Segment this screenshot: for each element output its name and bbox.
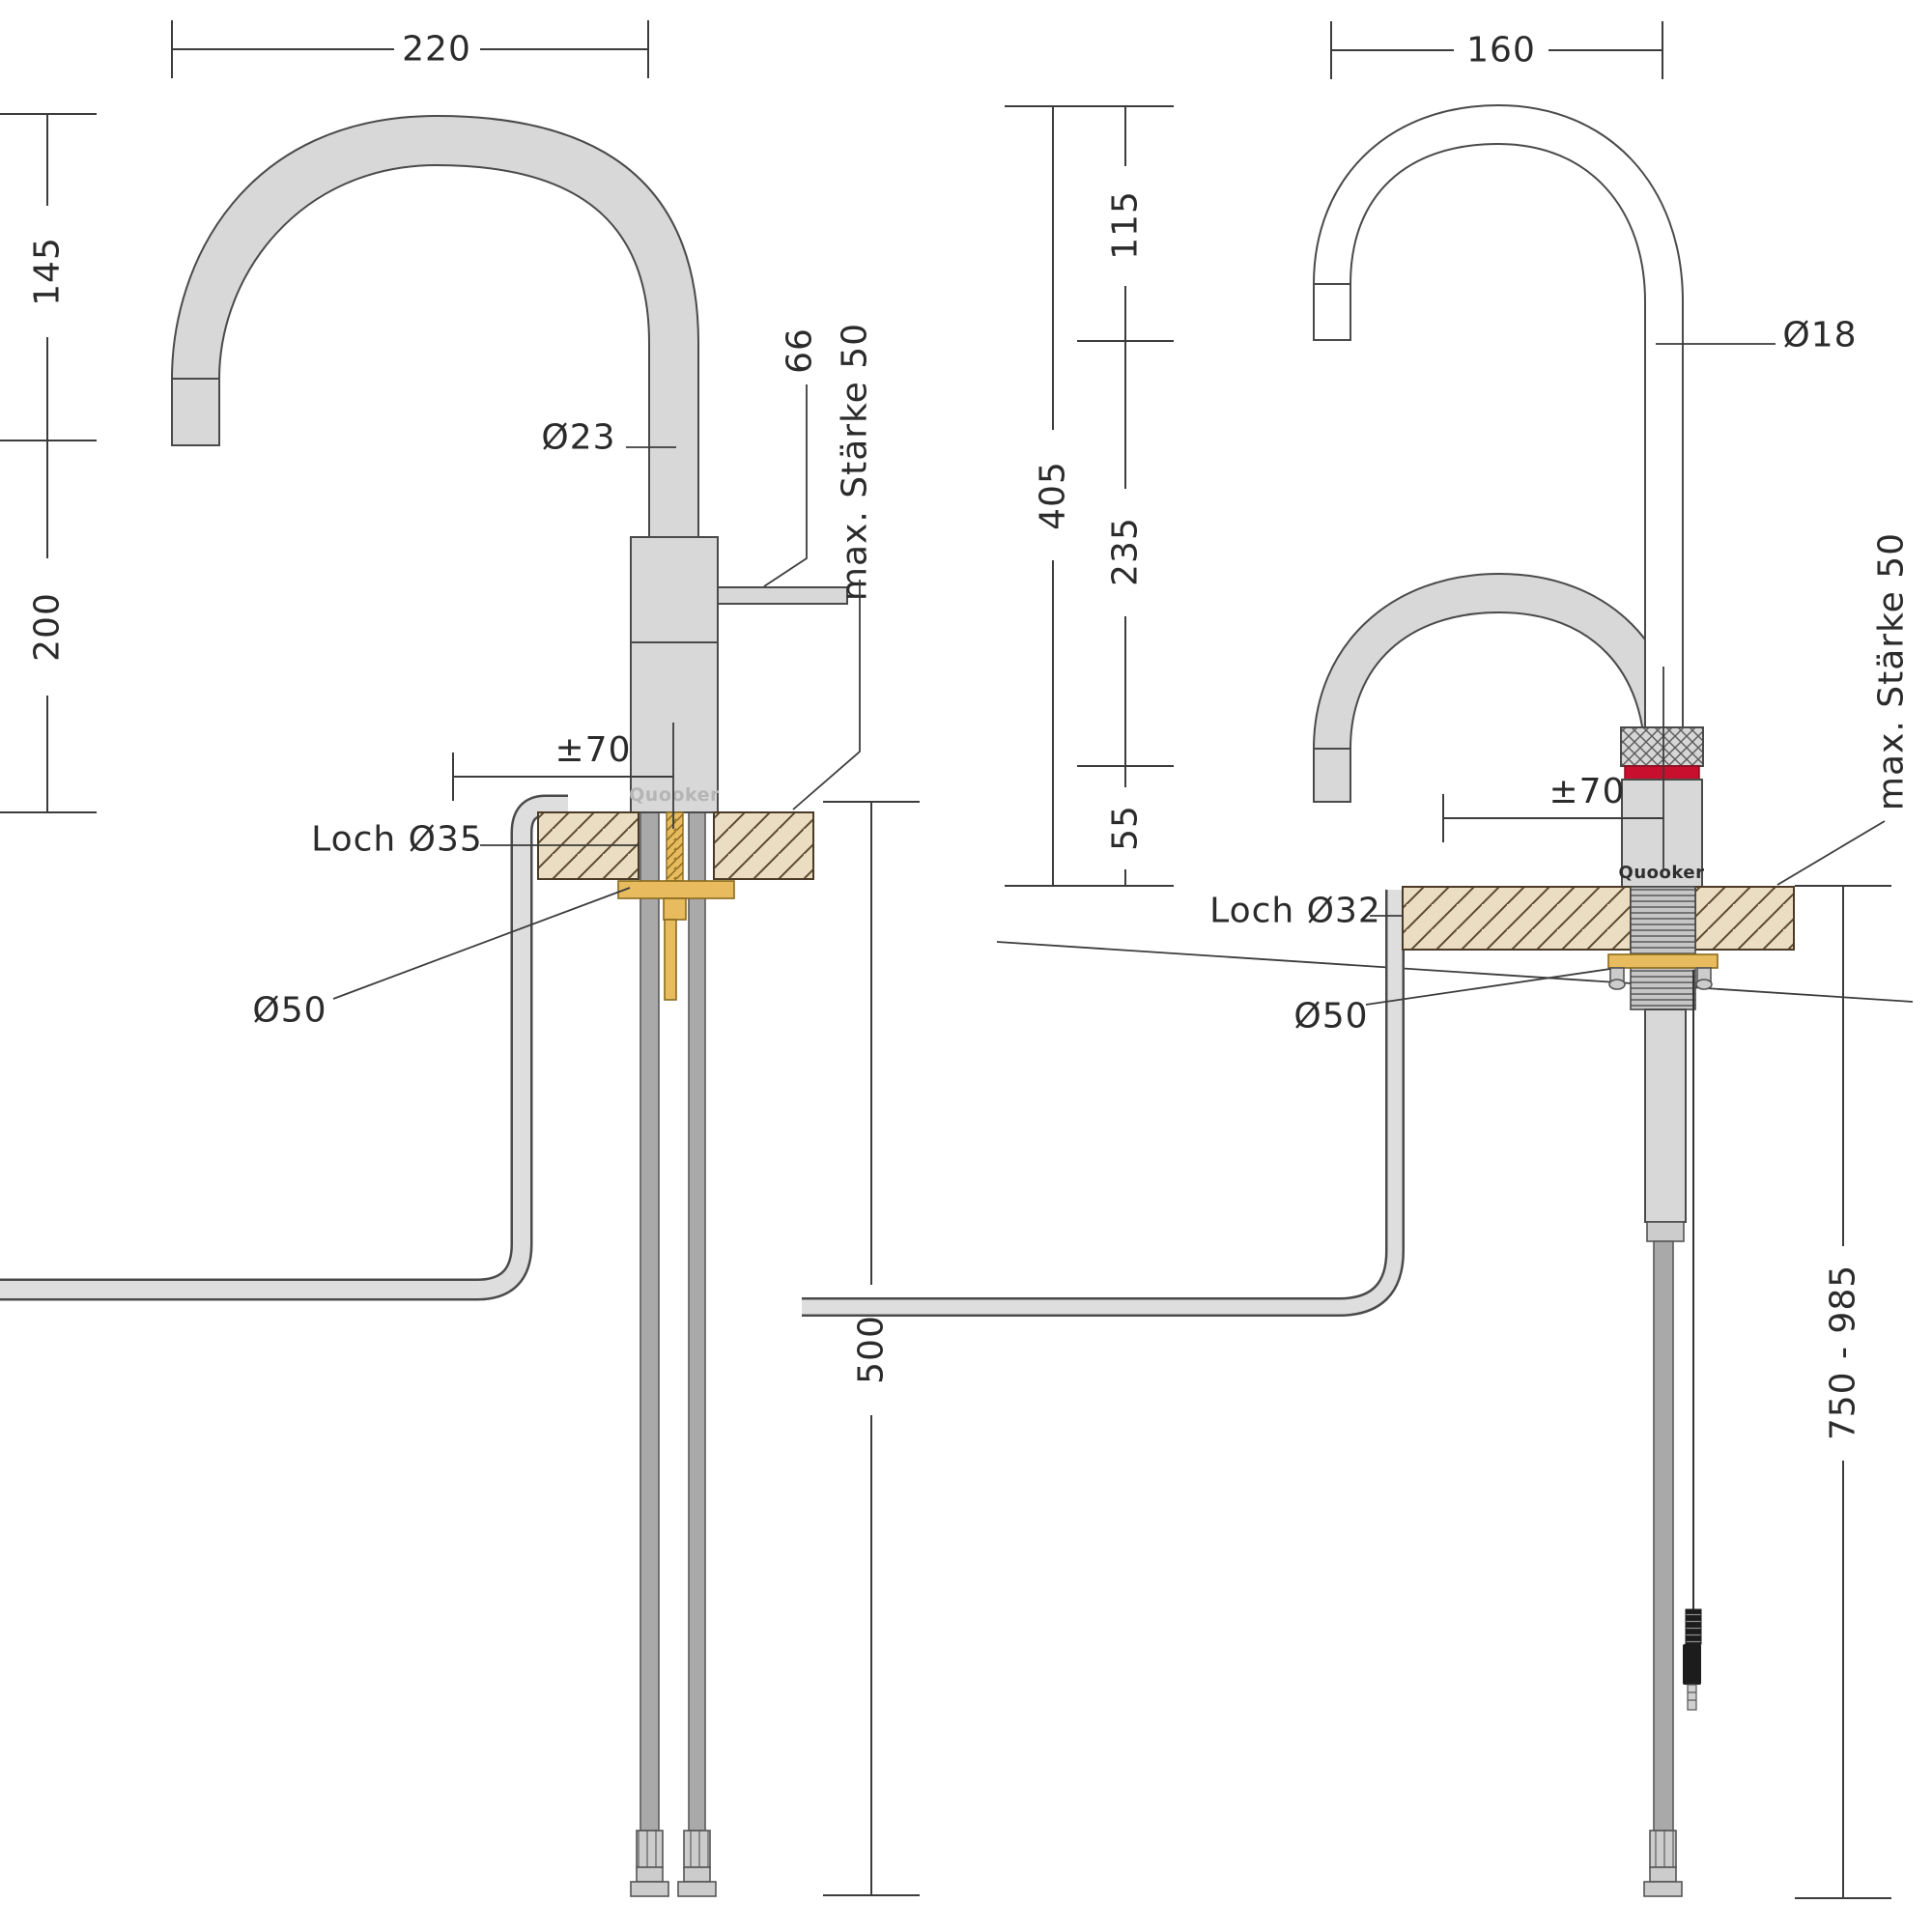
right-faucet-diagram: Quooker [802, 21, 1913, 1898]
dim-145-label: 145 [28, 237, 68, 306]
left-spout-tip [172, 379, 219, 445]
left-body-upper [631, 537, 718, 642]
right-spout-tip-lowered [1314, 749, 1350, 802]
right-fixing-pin-right-tip [1696, 980, 1712, 989]
reference-diagonal [997, 942, 1913, 1002]
right-knurled-knob [1621, 727, 1703, 766]
left-counter-right [714, 812, 813, 879]
right-flex-hose [802, 890, 1395, 1307]
right-spout-tip-raised [1314, 284, 1350, 340]
right-shaft [1645, 1009, 1686, 1222]
dim-200-label: 200 [28, 592, 68, 662]
dim-160-label: 160 [1466, 31, 1536, 71]
cable-jack-tip [1688, 1685, 1696, 1710]
dim-220-label: 220 [402, 30, 471, 70]
cable-plug [1683, 1644, 1701, 1685]
right-threaded-shank [1631, 887, 1695, 1009]
dim-160: 160 [1331, 21, 1662, 79]
left-flex-hose-outline [0, 806, 568, 1290]
dim-55-label: 55 [1106, 805, 1146, 851]
left-quooker-logo: Quooker [629, 784, 720, 806]
dim-o50-right-label: Ø50 [1293, 997, 1368, 1037]
left-flange-nut [618, 881, 734, 898]
dim-405: 405 [1005, 106, 1101, 886]
dim-staerke-right-label: max. Stärke 50 [1872, 532, 1912, 810]
dim-loch32-label: Loch Ø32 [1209, 892, 1381, 931]
left-faucet-diagram: Quooker 220 [0, 20, 920, 1896]
right-flange-washer [1608, 954, 1718, 968]
dim-145-200: 145 200 [0, 114, 97, 812]
dim-750-985: 750 - 985 [1795, 886, 1891, 1898]
technical-drawing: Quooker 220 [0, 0, 1932, 1932]
dim-o50-left-label: Ø50 [252, 991, 327, 1031]
dim-o50-left: Ø50 [252, 888, 630, 1031]
left-flex-hose [0, 806, 568, 1290]
right-red-ring [1625, 766, 1699, 780]
left-hose-1 [640, 812, 659, 1831]
dim-220: 220 [172, 20, 648, 78]
dim-115-label: 115 [1106, 190, 1146, 260]
right-hose-fitting [1644, 1831, 1682, 1896]
dim-500: 500 [823, 802, 920, 1895]
dim-o18-label: Ø18 [1782, 316, 1857, 355]
left-rod-lower [665, 920, 676, 1000]
dim-loch32: Loch Ø32 [1209, 892, 1404, 931]
right-counter-left [1403, 887, 1631, 950]
dim-115-235-55: 115 235 55 [1077, 106, 1174, 886]
left-hose-2 [689, 812, 705, 1831]
right-counter-right [1695, 887, 1794, 950]
faucet-spec-sheet: Quooker 220 [0, 0, 1932, 1932]
left-hose-fittings [631, 1831, 716, 1896]
dim-66: 66 [764, 327, 820, 586]
dim-66-label: 66 [781, 327, 820, 374]
left-nut-block [664, 898, 686, 920]
dim-o23-label: Ø23 [541, 418, 615, 458]
dim-staerke-left: max. Stärke 50 [793, 323, 875, 810]
dim-500-label: 500 [852, 1315, 892, 1384]
right-hose [1654, 1241, 1673, 1831]
right-shaft-collar [1647, 1222, 1684, 1241]
right-quooker-logo: Quooker [1619, 863, 1705, 883]
right-flex-hose-outline [802, 890, 1395, 1307]
dim-staerke-right: max. Stärke 50 [1777, 532, 1912, 885]
left-spout-arc [172, 116, 698, 537]
left-handle-lever [718, 587, 847, 604]
right-fixing-pin-left-tip [1609, 980, 1625, 989]
dim-750-985-label: 750 - 985 [1824, 1264, 1863, 1440]
dim-o18: Ø18 [1656, 316, 1858, 355]
dim-pm70-right-label: ±70 [1549, 772, 1626, 811]
dim-staerke-left-label: max. Stärke 50 [836, 323, 875, 601]
left-threaded-rod [667, 812, 683, 881]
dim-pm70-left-label: ±70 [555, 730, 632, 770]
dim-235-label: 235 [1106, 517, 1146, 586]
dim-loch35-label: Loch Ø35 [311, 820, 483, 860]
dim-405-label: 405 [1034, 461, 1073, 530]
